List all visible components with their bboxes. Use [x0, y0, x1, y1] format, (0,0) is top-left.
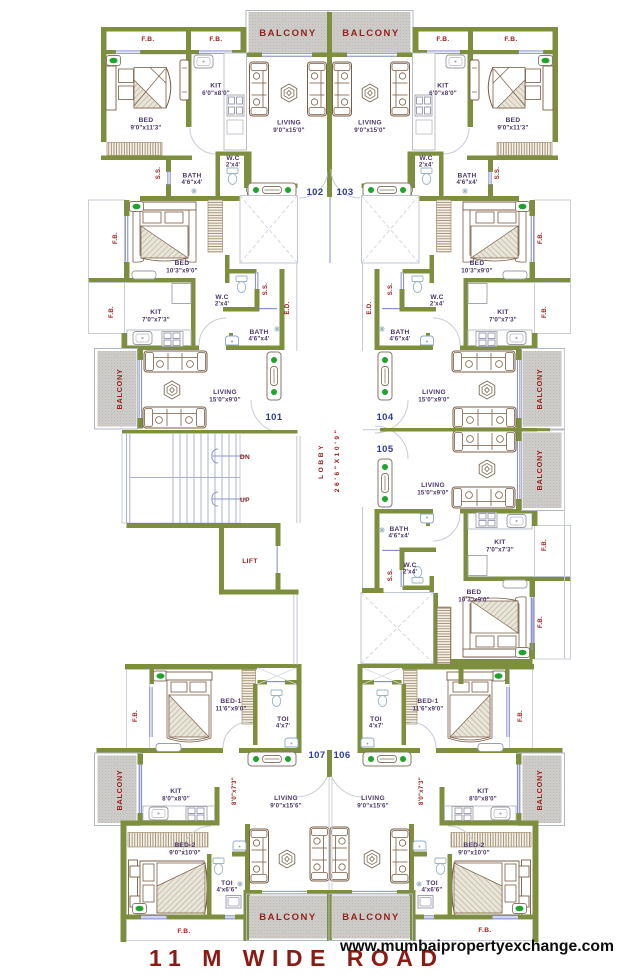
svg-text:8'0"x7'3": 8'0"x7'3": [232, 777, 238, 805]
svg-text:BED: BED: [506, 117, 521, 124]
svg-text:107: 107: [308, 750, 325, 761]
svg-text:9'0"x15'6": 9'0"x15'6": [270, 803, 301, 810]
svg-text:F.B.: F.B.: [538, 616, 544, 628]
svg-text:4'x7': 4'x7': [369, 723, 384, 730]
svg-text:F.B.: F.B.: [177, 928, 190, 935]
svg-text:KIT: KIT: [170, 788, 182, 795]
svg-text:104: 104: [376, 412, 393, 423]
svg-text:9'0"x11'3": 9'0"x11'3": [497, 125, 528, 132]
svg-text:2'x4': 2'x4': [419, 162, 434, 169]
svg-text:4'6"x4': 4'6"x4': [389, 336, 410, 343]
svg-text:15'0"x9'0": 15'0"x9'0": [417, 490, 448, 497]
svg-text:7'0"x7'3": 7'0"x7'3": [486, 547, 514, 554]
svg-text:15'0"x9'0": 15'0"x9'0": [209, 397, 240, 404]
svg-text:F.B.: F.B.: [504, 36, 517, 43]
svg-text:9'0"x10'0": 9'0"x10'0": [169, 850, 200, 857]
svg-text:E.D.: E.D.: [285, 302, 291, 315]
svg-text:4'6"x4': 4'6"x4': [181, 179, 202, 186]
svg-text:F.B.: F.B.: [141, 36, 154, 43]
svg-text:BED-1: BED-1: [417, 698, 438, 705]
svg-text:10'3"x9'0": 10'3"x9'0": [461, 268, 492, 275]
svg-text:F.B.: F.B.: [538, 232, 544, 244]
svg-text:8'0"x7'3": 8'0"x7'3": [419, 777, 425, 805]
svg-text:2'x4': 2'x4': [226, 162, 241, 169]
svg-text:4'6"x4': 4'6"x4': [388, 533, 409, 540]
svg-text:106: 106: [333, 750, 350, 761]
svg-text:KIT: KIT: [494, 539, 506, 546]
svg-text:F.B.: F.B.: [133, 710, 139, 722]
svg-text:LIVING: LIVING: [358, 120, 382, 127]
svg-text:KIT: KIT: [210, 83, 222, 90]
svg-text:F.B.: F.B.: [113, 232, 119, 244]
svg-text:KIT: KIT: [477, 788, 489, 795]
svg-text:4'x6'6": 4'x6'6": [421, 887, 442, 894]
svg-text:BED: BED: [470, 260, 485, 267]
svg-text:8'0"x8'0": 8'0"x8'0": [469, 796, 497, 803]
svg-text:BED-2: BED-2: [463, 842, 484, 849]
svg-text:BED: BED: [467, 589, 482, 596]
svg-text:UP: UP: [240, 497, 250, 504]
svg-text:10'3"x9'0": 10'3"x9'0": [458, 597, 489, 604]
svg-text:4'x7': 4'x7': [276, 723, 291, 730]
svg-text:101: 101: [265, 412, 282, 423]
svg-text:8'0"x8'0": 8'0"x8'0": [162, 796, 190, 803]
svg-text:F.B.: F.B.: [209, 36, 222, 43]
svg-text:9'0"x15'6": 9'0"x15'6": [357, 803, 388, 810]
svg-text:DN: DN: [240, 454, 250, 461]
svg-text:BED: BED: [139, 117, 154, 124]
svg-text:F.B.: F.B.: [518, 710, 524, 722]
svg-text:2'x4': 2'x4': [430, 301, 445, 308]
svg-text:BALCONY: BALCONY: [342, 912, 399, 923]
svg-text:S.S.: S.S.: [263, 283, 269, 296]
svg-text:103: 103: [336, 187, 353, 198]
svg-text:BED-1: BED-1: [220, 698, 241, 705]
svg-text:BALCONY: BALCONY: [259, 912, 316, 923]
svg-text:4'6"x4': 4'6"x4': [248, 336, 269, 343]
svg-text:F.B.: F.B.: [109, 306, 115, 318]
svg-text:BALCONY: BALCONY: [535, 369, 544, 410]
svg-text:BALCONY: BALCONY: [342, 28, 399, 39]
svg-text:11'6"x9'0": 11'6"x9'0": [412, 706, 443, 713]
svg-text:KIT: KIT: [437, 83, 449, 90]
svg-text:www.mumbaipropertyexchange.com: www.mumbaipropertyexchange.com: [339, 938, 614, 955]
svg-text:S.S.: S.S.: [388, 569, 394, 582]
svg-text:S.S.: S.S.: [388, 283, 394, 296]
svg-text:7'0"x7'3": 7'0"x7'3": [142, 317, 170, 324]
svg-text:F.B.: F.B.: [542, 539, 548, 551]
svg-text:F.B.: F.B.: [542, 306, 548, 318]
svg-text:2 6 ' 6 " X 1 0 ' 9 ": 2 6 ' 6 " X 1 0 ' 9 ": [334, 430, 341, 493]
svg-text:LIVING: LIVING: [213, 389, 237, 396]
svg-text:BALCONY: BALCONY: [115, 369, 124, 410]
svg-text:KIT: KIT: [497, 309, 509, 316]
svg-text:BALCONY: BALCONY: [115, 770, 124, 811]
svg-text:11'6"x9'0": 11'6"x9'0": [215, 706, 246, 713]
svg-text:102: 102: [306, 187, 323, 198]
svg-text:LIVING: LIVING: [361, 795, 385, 802]
svg-text:6'0"x8'0": 6'0"x8'0": [429, 90, 457, 97]
svg-text:LIVING: LIVING: [422, 389, 446, 396]
svg-text:2'x4': 2'x4': [403, 569, 418, 576]
svg-text:4'6"x4': 4'6"x4': [456, 179, 477, 186]
svg-text:E.D.: E.D.: [367, 302, 373, 315]
svg-text:105: 105: [376, 444, 393, 455]
svg-text:LIFT: LIFT: [242, 558, 258, 565]
svg-text:F.B.: F.B.: [436, 36, 449, 43]
svg-text:7'0"x7'3": 7'0"x7'3": [489, 317, 517, 324]
svg-text:LIVING: LIVING: [421, 482, 445, 489]
svg-text:LIVING: LIVING: [274, 795, 298, 802]
svg-text:BALCONY: BALCONY: [535, 450, 544, 491]
svg-text:4'x6'6": 4'x6'6": [216, 887, 237, 894]
svg-text:10'3"x9'0": 10'3"x9'0": [166, 268, 197, 275]
svg-text:BED-2: BED-2: [174, 842, 195, 849]
svg-text:9'0"x11'3": 9'0"x11'3": [130, 125, 161, 132]
svg-text:F.B.: F.B.: [478, 927, 491, 934]
svg-text:15'0"x9'0": 15'0"x9'0": [418, 397, 449, 404]
svg-text:9'0"x10'0": 9'0"x10'0": [458, 850, 489, 857]
svg-text:LIVING: LIVING: [277, 120, 301, 127]
svg-text:S.S.: S.S.: [156, 167, 162, 180]
svg-text:BALCONY: BALCONY: [535, 770, 544, 811]
svg-text:9'0"x15'0": 9'0"x15'0": [354, 127, 385, 134]
svg-text:S.S.: S.S.: [495, 167, 501, 180]
svg-text:BALCONY: BALCONY: [259, 28, 316, 39]
svg-text:9'0"x15'0": 9'0"x15'0": [273, 127, 304, 134]
svg-text:2'x4': 2'x4': [215, 301, 230, 308]
svg-text:L O B B Y: L O B B Y: [318, 445, 325, 479]
svg-text:KIT: KIT: [150, 309, 162, 316]
svg-text:BED: BED: [175, 260, 190, 267]
svg-text:6'0"x8'0": 6'0"x8'0": [202, 90, 230, 97]
